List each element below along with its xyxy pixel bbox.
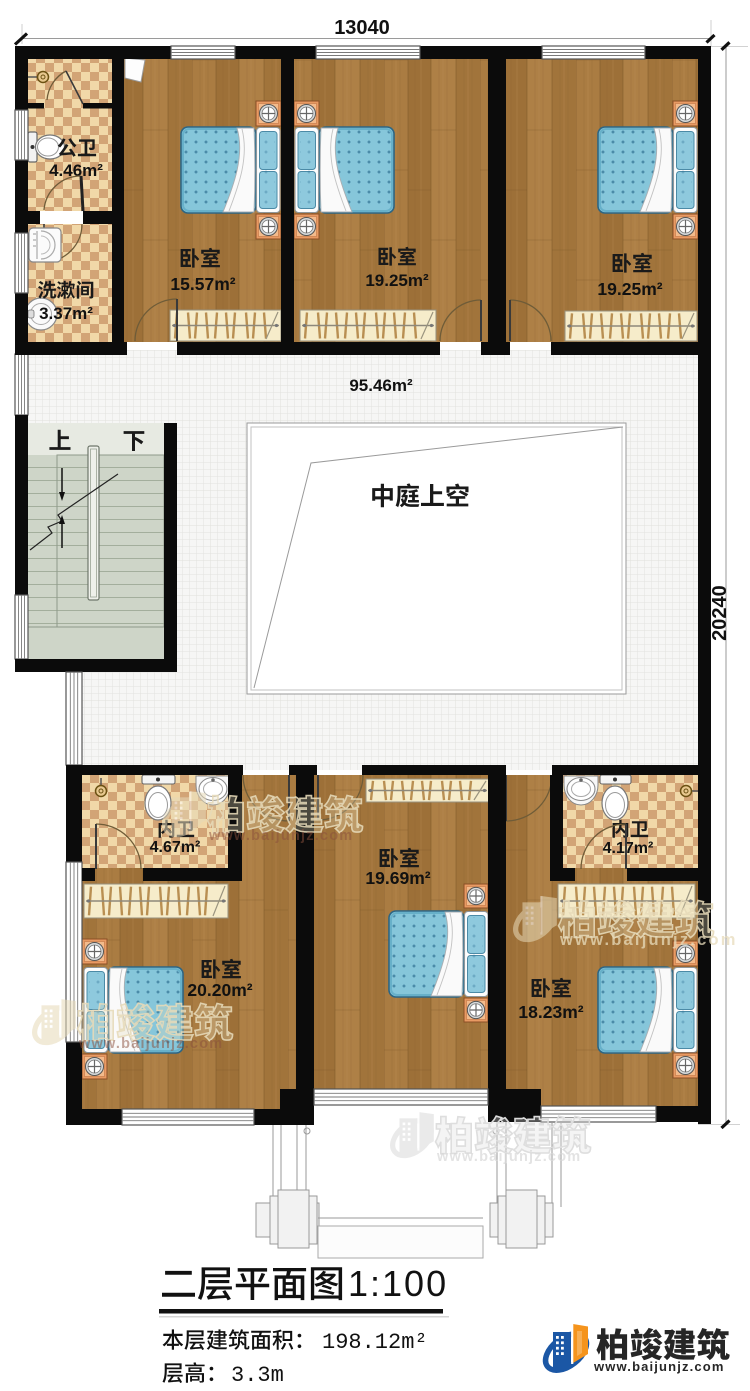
svg-text:18.23m²: 18.23m²: [518, 1002, 583, 1022]
svg-text:19.25m²: 19.25m²: [365, 271, 429, 290]
svg-text:1:100: 1:100: [348, 1263, 448, 1304]
svg-text:3.37m²: 3.37m²: [39, 304, 93, 323]
svg-text:www.baijunjz.com: www.baijunjz.com: [436, 1149, 581, 1165]
svg-text:4.67m²: 4.67m²: [150, 839, 201, 856]
svg-text:4.17m²: 4.17m²: [603, 840, 654, 857]
svg-text:19.25m²: 19.25m²: [597, 279, 662, 299]
svg-text:20.20m²: 20.20m²: [187, 980, 252, 1000]
svg-text:www.baijunjz.com: www.baijunjz.com: [559, 931, 738, 949]
svg-text:www.baijunjz.com: www.baijunjz.com: [78, 1036, 223, 1052]
svg-text:13040: 13040: [334, 17, 390, 39]
svg-text:15.57m²: 15.57m²: [170, 274, 235, 294]
svg-text:198.12m²: 198.12m²: [322, 1330, 428, 1355]
svg-text:www.baijunjz.com: www.baijunjz.com: [593, 1359, 725, 1374]
svg-text:19.69m²: 19.69m²: [365, 868, 430, 888]
svg-text:20240: 20240: [709, 585, 731, 641]
svg-text:3.3m: 3.3m: [231, 1363, 284, 1388]
svg-text:95.46m²: 95.46m²: [349, 376, 413, 395]
svg-text:4.46m²: 4.46m²: [49, 161, 103, 180]
svg-text:www.baijunjz.com: www.baijunjz.com: [208, 828, 353, 844]
